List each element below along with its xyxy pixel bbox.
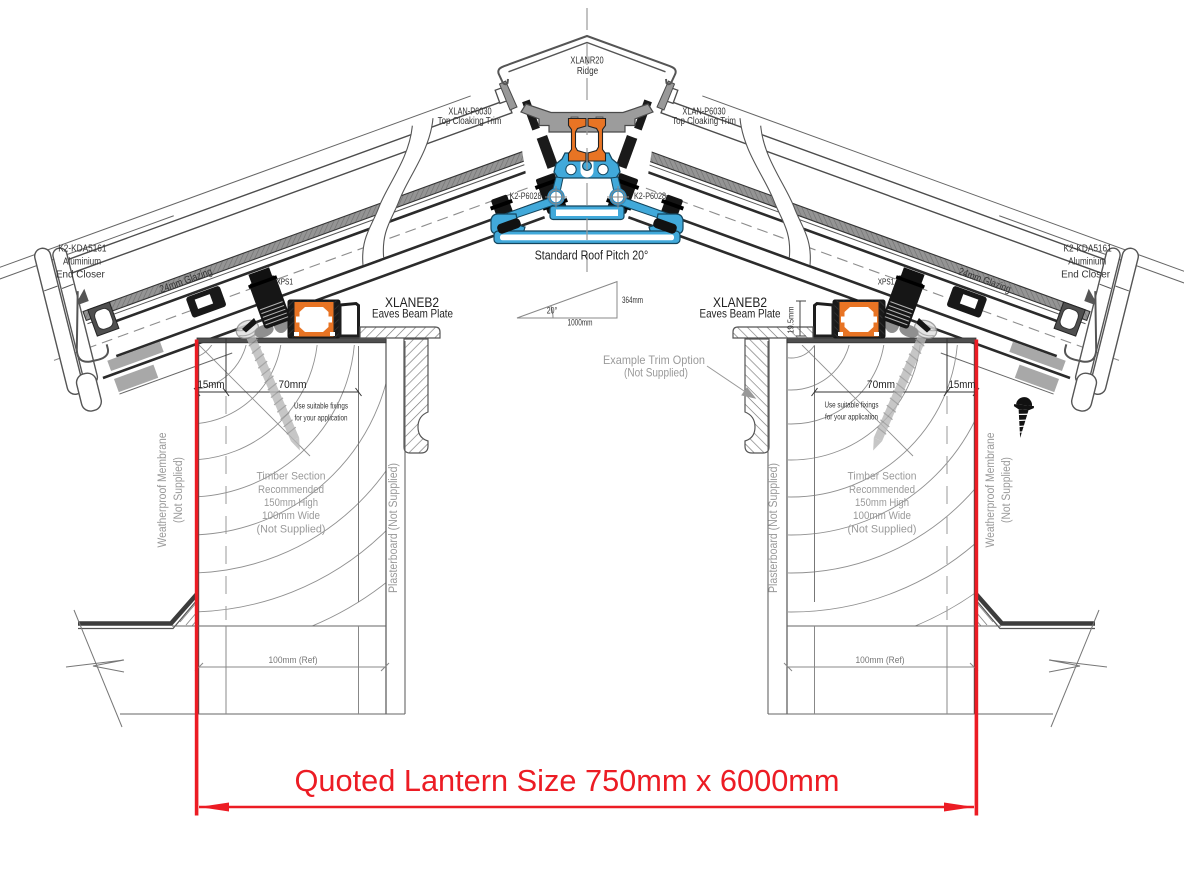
svg-text:Aluminium: Aluminium — [1068, 257, 1106, 268]
svg-text:Timber Section: Timber Section — [257, 471, 326, 483]
svg-text:Top Cloaking Trim: Top Cloaking Trim — [672, 116, 736, 127]
svg-text:K2-KDA5161: K2-KDA5161 — [58, 244, 107, 255]
svg-text:XPS1: XPS1 — [878, 277, 895, 287]
svg-text:K2-P6028: K2-P6028 — [634, 191, 666, 201]
svg-text:Eaves Beam Plate: Eaves Beam Plate — [700, 307, 781, 321]
svg-text:Aluminium: Aluminium — [63, 257, 101, 268]
svg-text:XLANR20: XLANR20 — [570, 56, 604, 67]
svg-text:Top Cloaking Trim: Top Cloaking Trim — [438, 116, 502, 127]
svg-text:(Not Supplied): (Not Supplied) — [257, 524, 326, 536]
svg-text:K2-KDA5161: K2-KDA5161 — [1064, 244, 1113, 255]
svg-text:19.5mm: 19.5mm — [786, 307, 796, 334]
svg-text:(Not Supplied): (Not Supplied) — [624, 366, 688, 380]
svg-text:15mm: 15mm — [949, 379, 976, 391]
svg-text:1000mm: 1000mm — [568, 318, 593, 328]
svg-text:70mm: 70mm — [279, 379, 307, 391]
svg-text:Weatherproof Membrane: Weatherproof Membrane — [985, 433, 997, 548]
svg-text:Weatherproof Membrane: Weatherproof Membrane — [157, 433, 169, 548]
svg-text:End Closer: End Closer — [1061, 270, 1111, 281]
svg-text:(Not Supplied): (Not Supplied) — [173, 457, 185, 523]
svg-text:Use suitable fixings: Use suitable fixings — [825, 401, 879, 410]
svg-text:20°: 20° — [547, 306, 558, 316]
svg-text:150mm High: 150mm High — [264, 497, 318, 509]
svg-text:100mm Wide: 100mm Wide — [262, 510, 320, 522]
svg-text:Recommended: Recommended — [849, 484, 915, 496]
svg-text:Plasterboard (Not Supplied): Plasterboard (Not Supplied) — [768, 463, 780, 593]
svg-text:100mm (Ref): 100mm (Ref) — [856, 655, 905, 666]
svg-text:Quoted Lantern Size 750mm x 60: Quoted Lantern Size 750mm x 6000mm — [295, 763, 840, 798]
svg-text:XPS1: XPS1 — [276, 277, 293, 287]
svg-text:for your application: for your application — [825, 413, 878, 422]
svg-text:Ridge: Ridge — [577, 66, 599, 77]
svg-text:Use suitable fixings: Use suitable fixings — [294, 402, 348, 411]
svg-text:Standard Roof Pitch 20°: Standard Roof Pitch 20° — [535, 248, 649, 263]
svg-text:Timber Section: Timber Section — [848, 471, 917, 483]
svg-text:364mm: 364mm — [622, 295, 643, 305]
svg-text:End Closer: End Closer — [56, 270, 106, 281]
svg-text:Plasterboard (Not Supplied): Plasterboard (Not Supplied) — [388, 463, 400, 593]
svg-text:15mm: 15mm — [198, 379, 225, 391]
svg-text:100mm (Ref): 100mm (Ref) — [269, 655, 318, 666]
svg-text:70mm: 70mm — [867, 379, 895, 391]
svg-text:Recommended: Recommended — [258, 484, 324, 496]
svg-text:100mm Wide: 100mm Wide — [853, 510, 911, 522]
svg-text:K2-P6028: K2-P6028 — [510, 191, 542, 201]
svg-text:(Not Supplied): (Not Supplied) — [1001, 457, 1013, 523]
svg-text:for your application: for your application — [295, 414, 348, 423]
svg-text:(Not Supplied): (Not Supplied) — [848, 524, 917, 536]
svg-text:150mm High: 150mm High — [855, 497, 909, 509]
svg-text:Eaves Beam Plate: Eaves Beam Plate — [372, 307, 453, 321]
